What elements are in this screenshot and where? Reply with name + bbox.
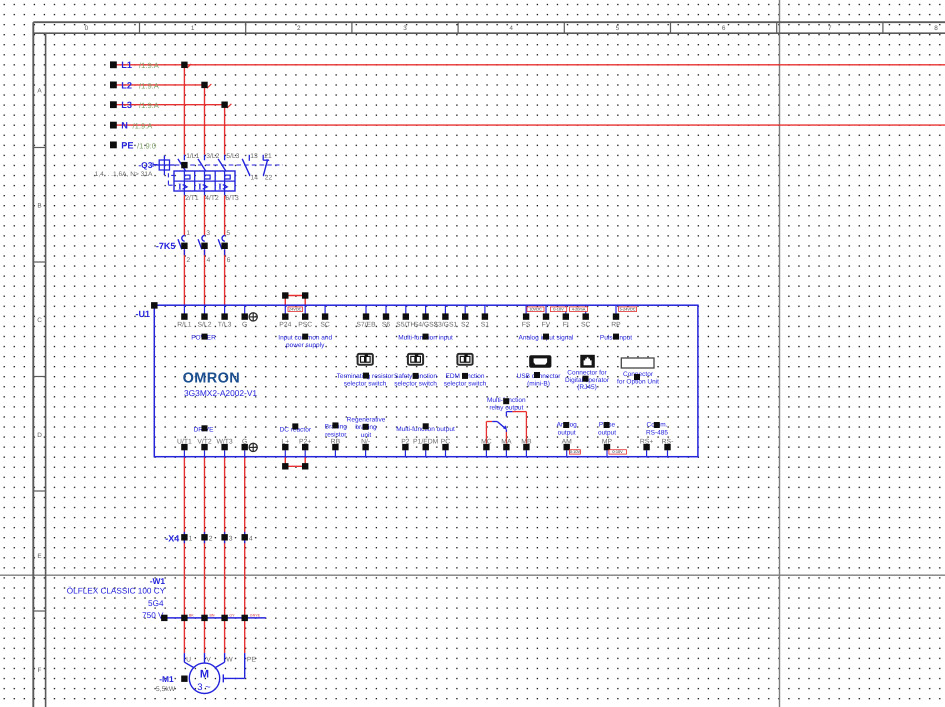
svg-text:P1/EDM: P1/EDM [413, 438, 439, 445]
svg-text:ÖLFLEX CLASSIC 100 CY: ÖLFLEX CLASSIC 100 CY [67, 586, 166, 595]
svg-text:output: output [558, 429, 576, 436]
svg-text:V: V [206, 656, 211, 663]
svg-text:0: 0 [85, 25, 89, 32]
svg-text:selector switch: selector switch [344, 381, 387, 388]
svg-text:4: 4 [509, 25, 513, 32]
svg-text:14: 14 [250, 174, 258, 181]
svg-text:S7/EB: S7/EB [356, 322, 376, 329]
svg-text:1: 1 [189, 535, 193, 542]
svg-text:RS-: RS- [662, 438, 674, 445]
svg-text:AM: AM [562, 438, 573, 445]
svg-text:PE: PE [247, 656, 257, 663]
svg-text:OMRON: OMRON [183, 370, 241, 386]
svg-text:PC: PC [441, 438, 451, 445]
svg-text:M: M [200, 669, 209, 681]
svg-text:10VDC: 10VDC [529, 307, 542, 312]
svg-text:Regenerative: Regenerative [347, 417, 386, 424]
svg-text:5: 5 [616, 25, 620, 32]
svg-text:selector switch: selector switch [444, 381, 487, 388]
svg-text:Connector for: Connector for [567, 370, 607, 377]
svg-text:F: F [38, 667, 42, 674]
svg-text:selector switch: selector switch [394, 381, 437, 388]
svg-text:RS-485: RS-485 [646, 429, 668, 436]
svg-text:U: U [186, 656, 191, 663]
svg-text:C: C [37, 317, 42, 324]
svg-text:B: B [37, 203, 41, 210]
svg-text:MC: MC [481, 438, 492, 445]
svg-text:-Q3: -Q3 [138, 160, 152, 170]
svg-text:D: D [37, 432, 42, 439]
svg-text:2: 2 [297, 25, 301, 32]
svg-text:RB: RB [331, 438, 341, 445]
svg-text:P24: P24 [279, 322, 291, 329]
svg-text:4: 4 [249, 535, 253, 542]
svg-text:13: 13 [250, 153, 258, 160]
svg-text:resistor: resistor [325, 431, 347, 438]
svg-text:/1.9:A: /1.9:A [139, 101, 160, 110]
svg-text:GY: GY [229, 613, 235, 617]
svg-text:4/T2: 4/T2 [205, 195, 219, 202]
svg-text:5-24VDC: 5-24VDC [620, 307, 636, 312]
svg-text:1,4. . .1,6A, N> 31A: 1,4. . .1,6A, N> 31A [95, 171, 153, 178]
svg-text:2: 2 [209, 535, 213, 542]
svg-text:output: output [598, 429, 616, 436]
svg-text:MA: MA [501, 438, 512, 445]
svg-text:/1.9:A: /1.9:A [133, 122, 154, 131]
svg-text:2: 2 [186, 257, 190, 264]
svg-text:PE: PE [121, 140, 133, 150]
svg-text:N/-: N/- [361, 438, 370, 445]
svg-text:24VDC: 24VDC [289, 307, 302, 312]
svg-text:W: W [226, 656, 233, 663]
svg-text:MP: MP [602, 438, 613, 445]
svg-text:3: 3 [229, 535, 233, 542]
svg-text:/1.9:A: /1.9:A [139, 61, 160, 70]
svg-text:5: 5 [226, 230, 230, 237]
svg-text:N: N [121, 121, 128, 131]
svg-text:8: 8 [934, 25, 938, 32]
svg-text:I: I [218, 182, 222, 192]
svg-text:L1: L1 [121, 60, 132, 70]
svg-text:21: 21 [264, 153, 272, 160]
svg-text:E: E [37, 553, 41, 560]
svg-text:-7K5: -7K5 [156, 241, 176, 251]
svg-text:S1: S1 [481, 322, 490, 329]
svg-text:6: 6 [722, 25, 726, 32]
svg-text:6/T3: 6/T3 [225, 195, 239, 202]
svg-text:S6: S6 [382, 322, 391, 329]
svg-text:GNYE: GNYE [250, 613, 261, 617]
svg-text:3/L2: 3/L2 [206, 153, 219, 160]
svg-text:5G4: 5G4 [148, 599, 164, 608]
svg-text:L+: L+ [281, 438, 289, 445]
svg-text:power supply: power supply [286, 342, 325, 349]
svg-text:FI: FI [563, 322, 569, 329]
svg-text:R/L1: R/L1 [177, 322, 192, 329]
svg-text:unit: unit [361, 432, 372, 439]
svg-text:/1.9:0: /1.9:0 [137, 141, 156, 150]
svg-text:P2: P2 [401, 438, 410, 445]
svg-text:S2: S2 [461, 322, 470, 329]
svg-text:S3/GS1: S3/GS1 [433, 322, 457, 329]
svg-text:V/T2: V/T2 [197, 438, 212, 445]
svg-text:P2+: P2+ [299, 438, 311, 445]
svg-text:W/T3: W/T3 [216, 438, 232, 445]
svg-text:-U1: -U1 [135, 309, 150, 319]
svg-text:FV: FV [542, 322, 551, 329]
svg-text:7: 7 [828, 25, 832, 32]
svg-text:1/L1: 1/L1 [186, 153, 199, 160]
svg-text:(RJ45): (RJ45) [577, 384, 597, 391]
svg-text:1: 1 [191, 25, 195, 32]
svg-text:G: G [242, 438, 247, 445]
svg-text:/1.9:A: /1.9:A [139, 81, 160, 90]
svg-text:RS+: RS+ [640, 438, 653, 445]
svg-text:3G3MX2-A2002-V1: 3G3MX2-A2002-V1 [184, 388, 257, 398]
svg-text:I: I [198, 182, 202, 192]
svg-text:0-10V: 0-10V [570, 449, 581, 454]
svg-text:BK: BK [189, 613, 194, 617]
svg-text:L2: L2 [121, 80, 132, 90]
svg-text:22: 22 [265, 174, 273, 181]
svg-text:(mini-B): (mini-B) [527, 381, 550, 388]
svg-text:S5/TH: S5/TH [396, 322, 415, 329]
svg-text:FS: FS [522, 322, 531, 329]
svg-text:MB: MB [521, 438, 532, 445]
svg-text:3: 3 [206, 230, 210, 237]
svg-text:A: A [37, 88, 42, 95]
svg-text:5,5kW: 5,5kW [156, 686, 176, 693]
svg-text:0-10V: 0-10V [553, 307, 564, 312]
svg-text:2/T1: 2/T1 [185, 195, 199, 202]
svg-text:S/L2: S/L2 [198, 322, 212, 329]
svg-text:-M1: -M1 [159, 674, 174, 684]
svg-text:SC: SC [320, 322, 330, 329]
svg-text:SC: SC [581, 322, 591, 329]
svg-text:RP: RP [611, 322, 621, 329]
svg-text:G: G [242, 322, 247, 329]
svg-text:I: I [178, 182, 182, 192]
svg-text:L3: L3 [121, 100, 132, 110]
svg-text:3: 3 [403, 25, 407, 32]
svg-text:6: 6 [227, 257, 231, 264]
svg-text:-X4: -X4 [165, 534, 179, 544]
svg-text:PSC: PSC [298, 322, 312, 329]
svg-text:-W1: -W1 [150, 576, 166, 586]
svg-text:U/T1: U/T1 [177, 438, 192, 445]
svg-text:relay output: relay output [489, 405, 523, 412]
svg-text:4-20mA: 4-20mA [572, 307, 586, 312]
svg-text:T/L3: T/L3 [218, 322, 232, 329]
svg-text:3 ~: 3 ~ [197, 682, 211, 693]
svg-text:4: 4 [207, 257, 211, 264]
svg-text:0-10V: 0-10V [612, 449, 623, 454]
svg-text:5/L3: 5/L3 [226, 153, 239, 160]
svg-text:1: 1 [186, 230, 190, 237]
svg-text:BN: BN [210, 613, 215, 617]
